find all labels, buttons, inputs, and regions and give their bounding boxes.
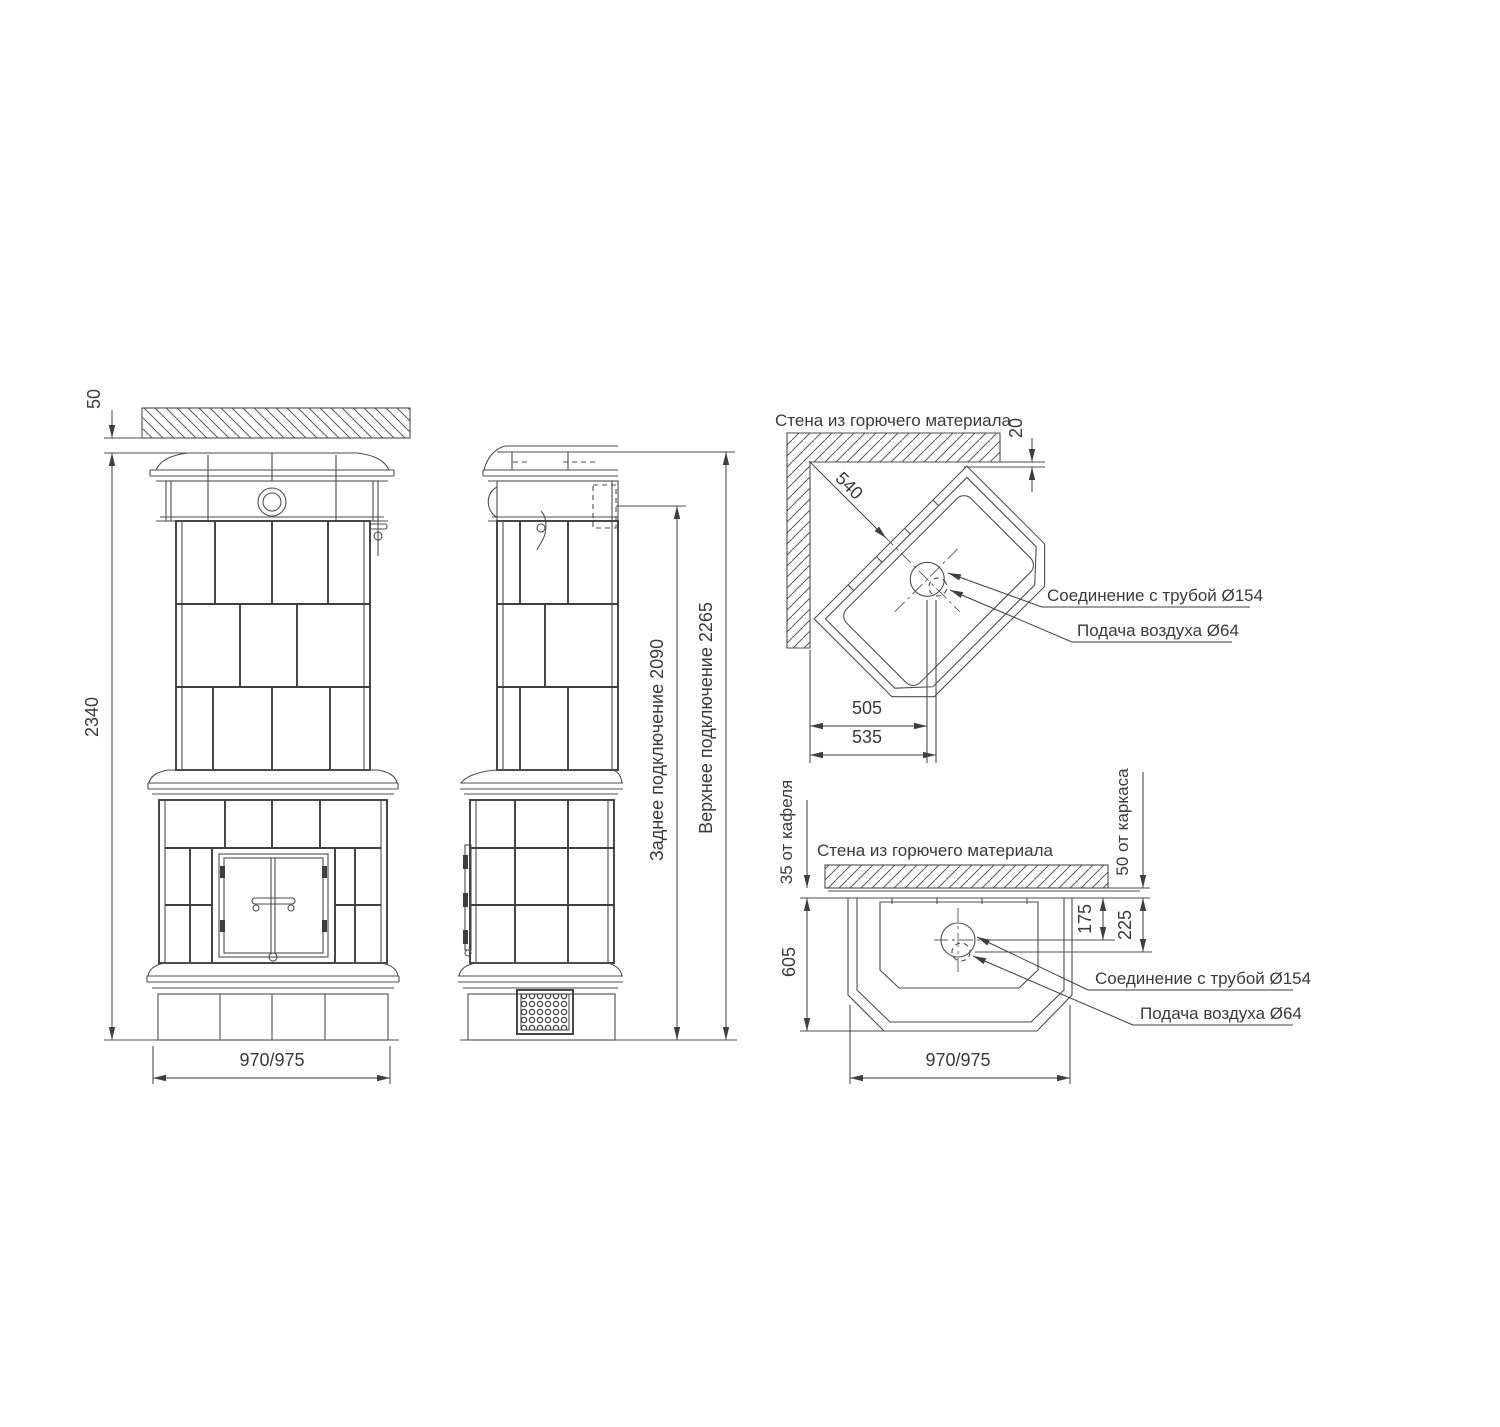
door-hinge xyxy=(220,920,225,932)
plan-flue-label: Соединение с трубой Ø154 xyxy=(1095,969,1311,988)
corner-wall-hatch xyxy=(787,433,1000,648)
technical-drawing-page: 50 2340 xyxy=(0,0,1500,1427)
dim-wall-gap: 20 xyxy=(1006,418,1026,438)
wall-plan-view: Стена из горючего материала 35 от кафеля… xyxy=(777,768,1311,1084)
side-view: Заднее подключение 2090 Верхнее подключе… xyxy=(458,446,737,1040)
dim-flue-from-tiles: 175 xyxy=(1075,904,1095,934)
dim-plan-width: 970/975 xyxy=(925,1050,990,1070)
dim-back-face: 540 xyxy=(832,468,867,503)
ceiling-hatch xyxy=(142,408,410,438)
dim-corner-offset: 535 xyxy=(852,727,882,747)
dim-flue-offset: 505 xyxy=(852,698,882,718)
door-hinge xyxy=(322,920,327,932)
door-handle-bar xyxy=(252,898,295,904)
damper-knob xyxy=(258,488,286,516)
dim-front-width: 970/975 xyxy=(239,1050,304,1070)
stove-installation-drawing: 50 2340 xyxy=(0,0,1500,1427)
corner-air-label: Подача воздуха Ø64 xyxy=(1077,621,1239,640)
corner-flue-label: Соединение с трубой Ø154 xyxy=(1047,586,1263,605)
corner-wall-label: Стена из горючего материала xyxy=(775,411,1011,430)
dim-flue-from-wall: 225 xyxy=(1115,910,1135,940)
dim-rear-connection: Заднее подключение 2090 xyxy=(647,639,667,861)
plan-air-label: Подача воздуха Ø64 xyxy=(1140,1004,1302,1023)
corner-plan-view: Стена из горючего материала 540 20 505 5… xyxy=(775,411,1263,763)
dim-depth: 605 xyxy=(779,947,799,977)
plan-wall-hatch xyxy=(825,865,1108,888)
air-grille xyxy=(517,990,573,1034)
dim-ceiling-gap: 50 xyxy=(84,389,104,409)
dim-tile-gap: 35 от кафеля xyxy=(777,780,796,885)
front-view: 50 2340 xyxy=(82,389,410,1084)
dim-frame-gap: 50 от каркаса xyxy=(1113,768,1132,876)
door-hinge xyxy=(220,866,225,878)
plan-wall-label: Стена из горючего материала xyxy=(817,841,1053,860)
dim-total-height: 2340 xyxy=(82,697,102,737)
door-hinge xyxy=(322,866,327,878)
dim-top-connection: Верхнее подключение 2265 xyxy=(696,602,716,834)
air-inlet-circle xyxy=(952,943,970,961)
fire-door xyxy=(212,848,335,963)
